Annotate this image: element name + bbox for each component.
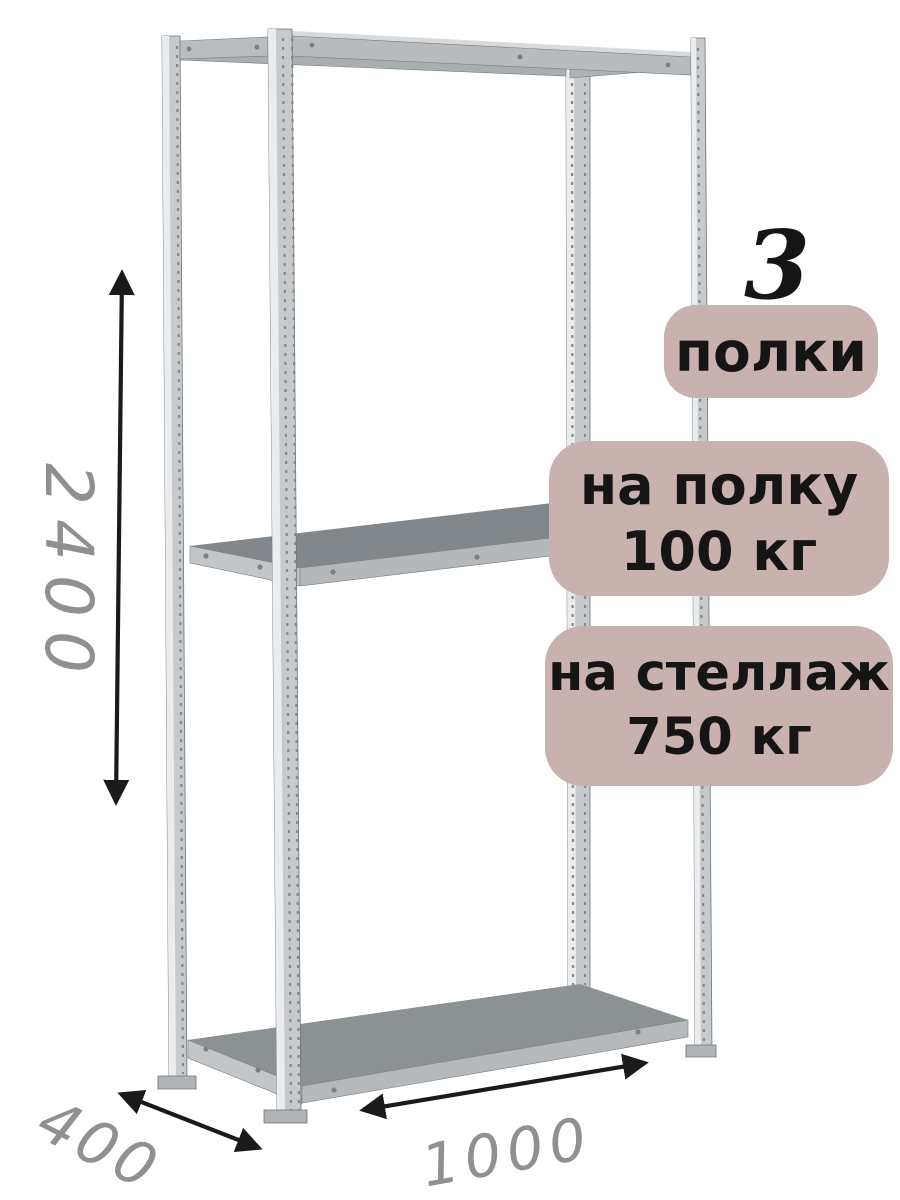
rack-load-line1: на стеллаж [548,642,890,706]
shelf-load-line2: 100 кг [621,519,817,585]
height-dimension-label: 2400 [37,445,107,705]
shelf-count-label: полки [675,320,867,384]
shelf-load-badge: на полку 100 кг [549,441,889,596]
post-foot [158,1076,196,1089]
rack-bottom-shelf [188,984,688,1104]
rack-illustration [0,0,900,1200]
shelf-load-line1: на полку [580,453,858,519]
height-dimension-arrow [116,273,122,802]
product-image: 2400 400 1000 3 полки на полку 100 кг на… [0,0,900,1200]
top-left-rail [180,37,268,59]
shelf-count-badge: полки [664,305,878,398]
rack-load-badge: на стеллаж 750 кг [545,626,893,786]
rack-top-shelf [180,31,692,78]
post-foot [686,1045,716,1057]
shelf-count-number: 3 [712,218,842,313]
post-foot [264,1110,307,1123]
rack-load-line2: 750 кг [626,706,811,770]
